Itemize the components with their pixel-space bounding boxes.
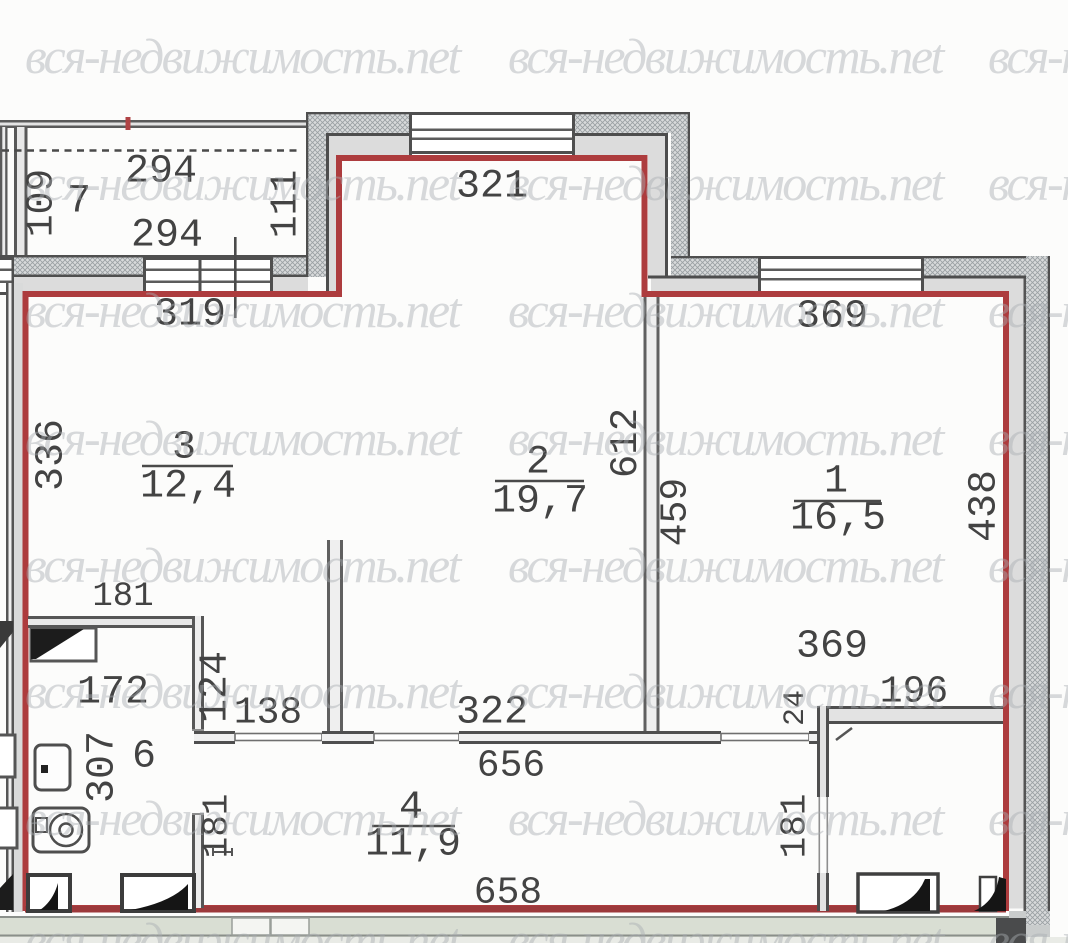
svg-text:вся-недвижимость.net: вся-недвижимость.net	[25, 28, 463, 84]
svg-text:вся-недвижимость.net: вся-недвижимость.net	[988, 410, 1068, 466]
svg-text:вся-недвижимость.net: вся-недвижимость.net	[988, 912, 1068, 943]
svg-text:вся-недвижимость.net: вся-недвижимость.net	[508, 537, 946, 593]
svg-text:вся-недвижимость.net: вся-недвижимость.net	[25, 537, 463, 593]
svg-text:вся-недвижимость.net: вся-недвижимость.net	[508, 663, 946, 719]
svg-text:459: 459	[655, 478, 698, 546]
svg-text:вся-недвижимость.net: вся-недвижимость.net	[25, 155, 463, 211]
svg-text:вся-недвижимость.net: вся-недвижимость.net	[988, 663, 1068, 719]
svg-text:16,5: 16,5	[790, 497, 886, 542]
svg-text:вся-недвижимость.net: вся-недвижимость.net	[25, 912, 463, 943]
svg-text:12,4: 12,4	[140, 465, 236, 510]
svg-text:вся-недвижимость.net: вся-недвижимость.net	[25, 663, 463, 719]
svg-text:вся-недвижимость.net: вся-недвижимость.net	[508, 912, 946, 943]
svg-text:вся-недвижимость.net: вся-недвижимость.net	[988, 790, 1068, 846]
svg-text:294: 294	[131, 214, 203, 259]
svg-text:вся-недвижимость.net: вся-недвижимость.net	[988, 155, 1068, 211]
svg-text:вся-недвижимость.net: вся-недвижимость.net	[508, 282, 946, 338]
svg-text:вся-недвижимость.net: вся-недвижимость.net	[508, 410, 946, 466]
svg-text:вся-недвижимость.net: вся-недвижимость.net	[508, 28, 946, 84]
svg-text:вся-недвижимость.net: вся-недвижимость.net	[988, 282, 1068, 338]
svg-text:19,7: 19,7	[492, 480, 588, 525]
svg-text:вся-недвижимость.net: вся-недвижимость.net	[25, 790, 463, 846]
svg-text:вся-недвижимость.net: вся-недвижимость.net	[25, 410, 463, 466]
svg-text:вся-недвижимость.net: вся-недвижимость.net	[508, 790, 946, 846]
svg-text:вся-недвижимость.net: вся-недвижимость.net	[988, 537, 1068, 593]
svg-text:438: 438	[963, 470, 1008, 542]
svg-text:656: 656	[477, 745, 545, 788]
svg-text:6: 6	[132, 735, 156, 780]
svg-text:вся-недвижимость.net: вся-недвижимость.net	[988, 28, 1068, 84]
svg-text:вся-недвижимость.net: вся-недвижимость.net	[508, 155, 946, 211]
svg-text:вся-недвижимость.net: вся-недвижимость.net	[25, 282, 463, 338]
svg-text:658: 658	[474, 872, 542, 915]
